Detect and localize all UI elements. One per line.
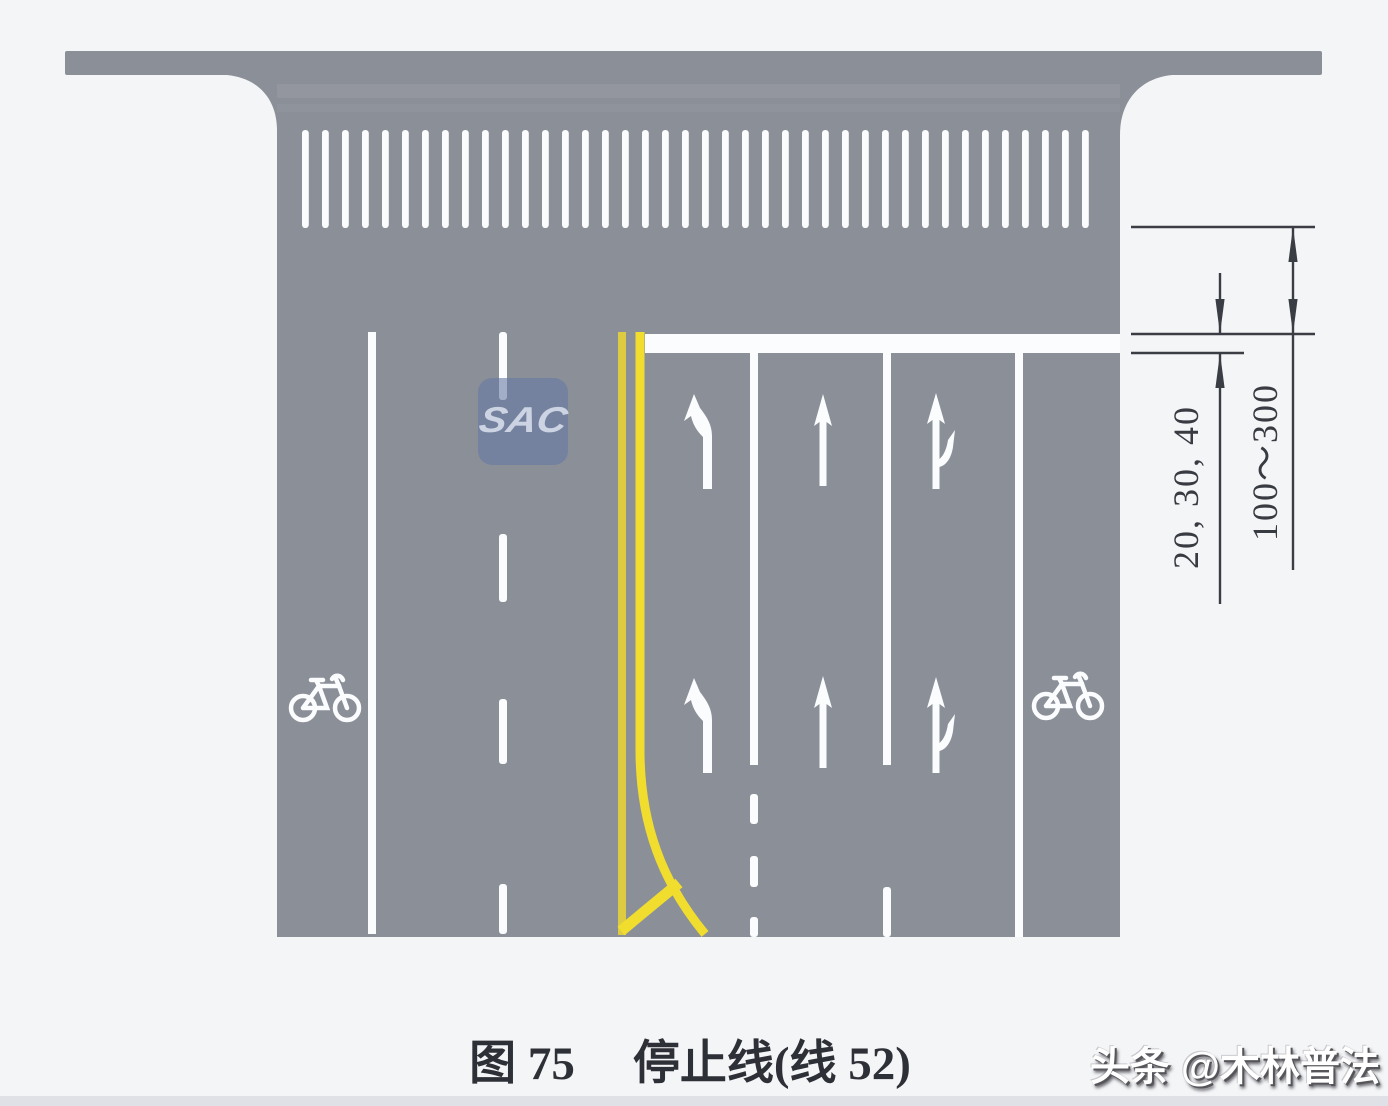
dimension-extension-lines: [1131, 227, 1315, 353]
lane-line-left-bike-solid: [368, 332, 376, 934]
dimension-label-stop-line-width: 20, 30, 40: [1165, 405, 1207, 569]
dimension-label-crosswalk-distance: 100～300: [1236, 383, 1288, 541]
pavement-streak: [277, 84, 1120, 98]
pavement-streak: [277, 104, 1120, 112]
lane-line-right-bike-solid: [1015, 353, 1023, 937]
page-bottom-band: [0, 1096, 1388, 1106]
dimension-line-crosswalk-distance: [1288, 227, 1297, 570]
sac-logo-watermark: SAC: [478, 378, 568, 465]
cross-street-edge: [65, 51, 1322, 75]
figure-canvas: SAC 20, 30, 40 100～300 图 75 停止线(线 52) 头条…: [0, 0, 1388, 1106]
stop-line: [645, 334, 1120, 353]
figure-caption: 图 75 停止线(线 52): [300, 1024, 1080, 1093]
figure-title: 停止线(线 52): [633, 1024, 911, 1093]
figure-number: 图 75: [469, 1024, 575, 1093]
sac-logo-text: SAC: [476, 399, 571, 441]
publisher-watermark: 头条 @木林普法: [1090, 1034, 1380, 1092]
dimension-line-stopline-width: [1215, 273, 1224, 604]
